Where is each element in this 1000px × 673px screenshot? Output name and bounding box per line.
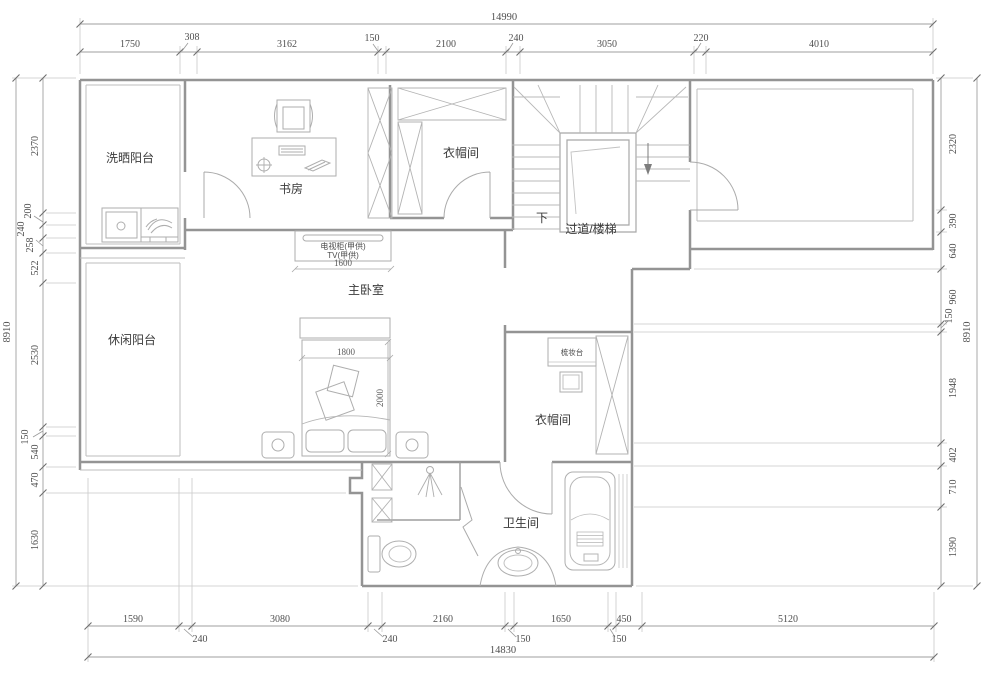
bathroom-fixtures bbox=[368, 462, 627, 586]
dim-top-seg-2: 3162 bbox=[277, 39, 297, 50]
dim-left-seg-5: 2530 bbox=[30, 345, 41, 365]
dim-text-bottom: 14830 1590 240 3080 240 2160 150 1650 15… bbox=[123, 614, 798, 656]
dim-bottom-seg-1: 240 bbox=[193, 634, 208, 645]
extension-lines bbox=[12, 18, 973, 662]
dim-right-seg-7: 710 bbox=[948, 480, 959, 495]
dim-bottom-seg-7: 150 bbox=[612, 634, 627, 645]
tv-cabinet-label: 电视柜(甲供) bbox=[320, 241, 366, 251]
bed-throw-line bbox=[302, 416, 390, 424]
room-label-laundry-balcony: 洗晒阳台 bbox=[106, 150, 154, 165]
dim-top-total: 14990 bbox=[491, 12, 517, 23]
structure bbox=[80, 80, 933, 586]
bathtub-inner bbox=[570, 477, 610, 565]
dim-left-seg-7: 540 bbox=[30, 445, 41, 460]
stairs-treads bbox=[512, 85, 690, 229]
dimension-lines bbox=[13, 21, 981, 661]
room-label-master-bedroom: 主卧室 bbox=[348, 282, 384, 297]
cloakroom-right-furniture bbox=[548, 338, 596, 392]
desk-books bbox=[305, 160, 330, 171]
dim-left-seg-4: 522 bbox=[30, 261, 41, 276]
dim-bottom-seg-0: 1590 bbox=[123, 614, 143, 625]
bathtub-hatch bbox=[577, 532, 603, 546]
dim-text-left: 8910 2370 200 240 258 522 2530 150 540 4… bbox=[2, 136, 41, 550]
stairs-stringer bbox=[571, 147, 620, 214]
sink-drain bbox=[117, 222, 125, 230]
dim-bottom-total: 14830 bbox=[490, 645, 516, 656]
desk-lamp-cross bbox=[256, 157, 272, 173]
dim-top-seg-1: 308 bbox=[185, 32, 200, 43]
wardrobe-cloakroom-right bbox=[596, 336, 628, 454]
dim-left-seg-1: 200 bbox=[23, 204, 34, 219]
dim-top-seg-6: 3050 bbox=[597, 39, 617, 50]
wardrobe-cloakroom-left-col bbox=[398, 122, 422, 214]
bathroom-partitions bbox=[377, 462, 460, 520]
dim-right-seg-4: 150 bbox=[944, 309, 955, 324]
dim-bottom-seg-4: 2160 bbox=[433, 614, 453, 625]
door-shower-folding bbox=[461, 487, 478, 556]
wardrobe-study bbox=[368, 88, 392, 218]
tv-bar bbox=[303, 235, 383, 241]
tv-cabinet: 电视柜(甲供) TV(甲供) 1600 bbox=[292, 231, 394, 272]
door-bathroom bbox=[500, 462, 552, 514]
dim-left-seg-6: 150 bbox=[20, 430, 31, 445]
vanity-basin-inner bbox=[504, 555, 532, 571]
tv-width-label: 1600 bbox=[334, 258, 353, 268]
dim-left-seg-8: 470 bbox=[30, 473, 41, 488]
dim-left-total: 8910 bbox=[2, 322, 13, 343]
room-label-bathroom: 卫生间 bbox=[503, 516, 539, 530]
dim-line-top bbox=[80, 24, 933, 52]
shower-head-dot bbox=[427, 467, 434, 474]
bed-width-label: 1800 bbox=[337, 347, 356, 357]
toilet-bowl-inner bbox=[389, 546, 411, 562]
dim-right-seg-8: 1390 bbox=[948, 537, 959, 557]
doors bbox=[204, 162, 738, 556]
nightstand-right bbox=[396, 432, 428, 458]
vanity-counter bbox=[480, 547, 556, 586]
dim-left-seg-0: 2370 bbox=[30, 136, 41, 156]
dim-top-seg-5: 240 bbox=[509, 33, 524, 44]
bed-cushion-1 bbox=[327, 365, 359, 397]
dim-bottom-seg-6: 1650 bbox=[551, 614, 571, 625]
door-cloakroom-top bbox=[444, 172, 490, 218]
washer-swirl bbox=[146, 219, 172, 233]
laundry-counter bbox=[102, 208, 178, 242]
room-label-study: 书房 bbox=[279, 181, 303, 196]
wardrobe-cloakroom-top-band bbox=[398, 88, 506, 120]
nightstand-right-lamp bbox=[406, 439, 418, 451]
dim-text-right: 8910 2320 390 640 960 150 1948 402 710 1… bbox=[944, 134, 973, 557]
dim-text-top: 14990 1750 308 3162 150 2100 240 3050 22… bbox=[120, 12, 829, 50]
dim-top-seg-8: 4010 bbox=[809, 39, 829, 50]
nightstand-left bbox=[262, 432, 294, 458]
nightstand-left-lamp bbox=[272, 439, 284, 451]
tub-surround-hatch bbox=[619, 474, 627, 568]
bed-pillow-1 bbox=[306, 430, 344, 452]
room-label-leisure-balcony: 休闲阳台 bbox=[108, 332, 156, 347]
bathtub-outer bbox=[565, 472, 615, 570]
keyboard bbox=[279, 146, 305, 155]
dim-left-seg-3: 258 bbox=[25, 238, 36, 253]
room-label-cloakroom-top: 衣帽间 bbox=[443, 145, 479, 160]
bathtub-water-line bbox=[571, 514, 609, 520]
bed-bench bbox=[300, 318, 390, 338]
laundry-fixtures bbox=[102, 208, 178, 242]
bed-group: 1800 2000 bbox=[262, 318, 428, 458]
bed-cushion-2 bbox=[316, 382, 354, 420]
room-label-stairs-down: 下 bbox=[536, 211, 548, 225]
extension-lines-right bbox=[634, 78, 973, 586]
walls-main bbox=[80, 80, 933, 586]
walls-light-faces bbox=[80, 85, 913, 470]
stairs-down-arrow-head bbox=[644, 164, 652, 175]
dim-bottom-seg-9: 5120 bbox=[778, 614, 798, 625]
vanity-faucet bbox=[516, 549, 521, 554]
dim-right-seg-0: 2320 bbox=[948, 134, 959, 154]
bed-length-label: 2000 bbox=[375, 389, 385, 408]
dim-top-seg-7: 220 bbox=[694, 33, 709, 44]
desk bbox=[252, 138, 336, 176]
dim-ticks-top bbox=[77, 21, 937, 56]
floor-plan-canvas: 14990 1750 308 3162 150 2100 240 3050 22… bbox=[0, 0, 1000, 673]
shower-head bbox=[418, 473, 442, 497]
bathtub-drain bbox=[584, 554, 598, 561]
dim-top-seg-4: 2100 bbox=[436, 39, 456, 50]
toilet-tank bbox=[368, 536, 380, 572]
dim-bottom-seg-5: 150 bbox=[516, 634, 531, 645]
dim-left-seg-2: 240 bbox=[16, 222, 27, 237]
dim-bottom-seg-8: 450 bbox=[617, 614, 632, 625]
dim-bottom-seg-3: 240 bbox=[383, 634, 398, 645]
dim-right-seg-1: 390 bbox=[948, 214, 959, 229]
dim-right-seg-5: 1948 bbox=[948, 378, 959, 398]
extension-lines-top bbox=[80, 18, 933, 74]
stairs bbox=[512, 85, 690, 232]
desk-chair bbox=[275, 100, 313, 132]
dim-right-seg-6: 402 bbox=[948, 448, 959, 463]
floor-plan: 14990 1750 308 3162 150 2100 240 3050 22… bbox=[0, 0, 1000, 673]
room-label-dressing-table: 梳妆台 bbox=[561, 347, 584, 357]
study-furniture bbox=[252, 100, 336, 176]
wardrobes bbox=[368, 88, 628, 454]
dim-right-total: 8910 bbox=[962, 322, 973, 343]
bed-pillow-2 bbox=[348, 430, 386, 452]
dim-top-seg-3: 150 bbox=[365, 33, 380, 44]
dim-right-seg-3: 960 bbox=[948, 290, 959, 305]
dressing-stool-inner bbox=[563, 375, 579, 389]
dim-right-seg-2: 640 bbox=[948, 244, 959, 259]
door-study bbox=[204, 172, 250, 218]
bath-closet-boxes bbox=[372, 464, 392, 522]
stairs-newel-box bbox=[560, 133, 636, 232]
dim-top-seg-0: 1750 bbox=[120, 39, 140, 50]
dim-left-seg-9: 1630 bbox=[30, 530, 41, 550]
dim-bottom-seg-2: 3080 bbox=[270, 614, 290, 625]
room-label-corridor-stairs: 过道/楼梯 bbox=[565, 221, 616, 236]
dim-leaders bbox=[33, 43, 948, 637]
room-label-cloakroom-right: 衣帽间 bbox=[535, 412, 571, 427]
